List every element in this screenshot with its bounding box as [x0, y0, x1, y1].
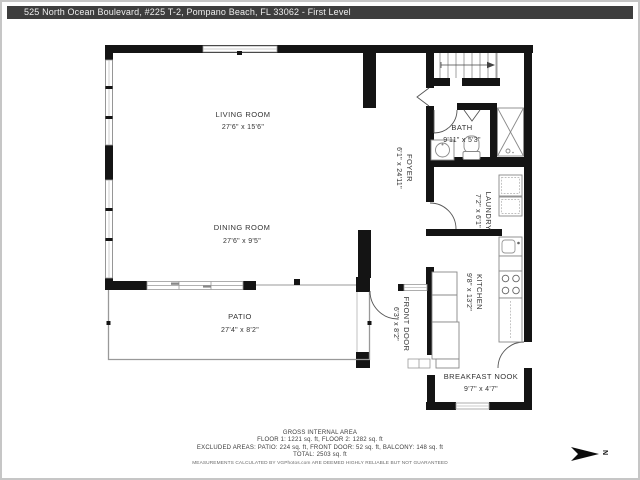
kitchen-counter-lower: [499, 298, 522, 342]
stair-direction-arrow: [441, 62, 495, 68]
kitchen-door-arc: [498, 342, 524, 368]
laundry-dims: 7'2" x 6'1": [474, 194, 481, 228]
north-arrow-glyph: [571, 446, 601, 462]
area-summary: GROSS INTERNAL AREA FLOOR 1: 1221 sq. ft…: [0, 430, 640, 467]
breakfast-nook-label: BREAKFAST NOOK: [444, 372, 519, 381]
kitchen-label: KITCHEN: [475, 274, 484, 310]
open-edge-line: [256, 279, 356, 285]
gross-area-title: GROSS INTERNAL AREA: [0, 430, 640, 437]
patio-label: PATIO: [228, 312, 252, 321]
exterior-walls: [105, 45, 533, 410]
measurement-disclaimer: MEASUREMENTS CALCULATED BY VGPhotos.com …: [0, 460, 640, 467]
breakfast-bench: [436, 359, 459, 368]
sliding-door: [147, 282, 243, 290]
total-area: TOTAL: 2503 sq. ft: [0, 452, 640, 459]
patio-dims: 27'4" x 8'2": [221, 327, 259, 334]
foyer-dims: 6'1" x 24'11": [395, 147, 402, 189]
kitchen-counter-left: [432, 272, 457, 322]
shower: [498, 108, 524, 156]
living-room-dims: 27'6" x 15'6": [222, 124, 265, 131]
front-door-sidelight-window: [404, 285, 427, 291]
living-room-label: LIVING ROOM: [216, 110, 271, 119]
dryer: [499, 197, 522, 216]
living-room-window-top: [203, 46, 277, 55]
shower-opening-chevron: [464, 110, 480, 121]
stairs: [440, 53, 497, 78]
front-door-label: FRONT DOOR: [402, 297, 411, 352]
breakfast-nook-window: [456, 403, 489, 409]
kitchen-dims: 9'8" x 13'2": [465, 273, 472, 311]
stove: [499, 271, 522, 298]
front-door-dims: 6'3" x 8'2": [392, 307, 399, 341]
patio-railing: [107, 290, 372, 360]
dining-room-window-left-lower: [106, 180, 113, 278]
laundry-label: LAUNDRY: [484, 192, 493, 231]
dining-room-label: DINING ROOM: [214, 223, 271, 232]
breakfast-nook-dims: 9'7" x 4'7": [464, 386, 498, 393]
dining-room-dims: 27'6" x 9'5": [223, 238, 261, 245]
floor-areas: FLOOR 1: 1221 sq. ft, FLOOR 2: 1282 sq. …: [0, 437, 640, 444]
kitchen-sink: [499, 237, 522, 256]
floor-plan-canvas: LIVING ROOM 27'6" x 15'6" DINING ROOM 27…: [0, 0, 640, 480]
north-arrow-icon: N: [571, 446, 613, 464]
washer: [499, 175, 522, 196]
living-room-window-left-upper: [106, 60, 113, 145]
foyer-label: FOYER: [405, 154, 414, 182]
laundry-door-arc: [430, 203, 456, 229]
north-label: N: [601, 450, 608, 455]
bath-dims: 9'11" x 5'3": [443, 137, 481, 144]
bath-label: BATH: [451, 123, 472, 132]
laundry-appliances: [499, 175, 522, 216]
excluded-areas: EXCLUDED AREAS: PATIO: 224 sq. ft, FRONT…: [0, 445, 640, 452]
foyer-opening-chevron: [417, 88, 429, 106]
refrigerator: [432, 322, 459, 359]
kitchen-counter-upper: [499, 256, 522, 271]
